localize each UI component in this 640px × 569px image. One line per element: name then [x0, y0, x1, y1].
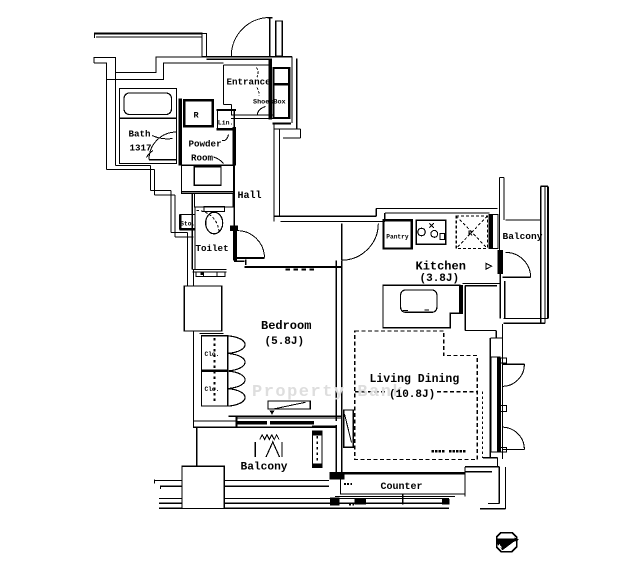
svg-text:Bedroom: Bedroom [261, 319, 311, 333]
svg-text:Entrance: Entrance [227, 77, 272, 88]
svg-text:Clo.: Clo. [205, 386, 220, 393]
svg-text:Room: Room [191, 153, 214, 164]
svg-text:(3.8J): (3.8J) [420, 273, 460, 285]
svg-text:Hall: Hall [238, 190, 262, 202]
svg-text:Sto.: Sto. [180, 221, 195, 228]
svg-text:Lin.: Lin. [218, 120, 234, 127]
svg-text:Balcony: Balcony [503, 231, 543, 242]
svg-text:R: R [468, 231, 473, 239]
svg-text:1317: 1317 [130, 143, 152, 154]
svg-text:Balcony: Balcony [241, 462, 288, 474]
svg-text:Bath: Bath [129, 129, 151, 140]
svg-text:Clo.: Clo. [205, 351, 220, 358]
svg-text:R: R [194, 111, 200, 121]
svg-text:Counter: Counter [381, 482, 423, 493]
svg-text:Powder: Powder [189, 139, 222, 150]
svg-text:ShoesBox: ShoesBox [253, 98, 286, 106]
svg-text:(10.8J): (10.8J) [389, 389, 435, 401]
svg-text:Living Dining: Living Dining [370, 373, 460, 386]
svg-text:Kitchen: Kitchen [416, 260, 466, 274]
svg-text:Toilet: Toilet [196, 243, 229, 254]
svg-text:Pantry: Pantry [386, 234, 409, 241]
svg-text:(5.8J): (5.8J) [265, 336, 305, 348]
